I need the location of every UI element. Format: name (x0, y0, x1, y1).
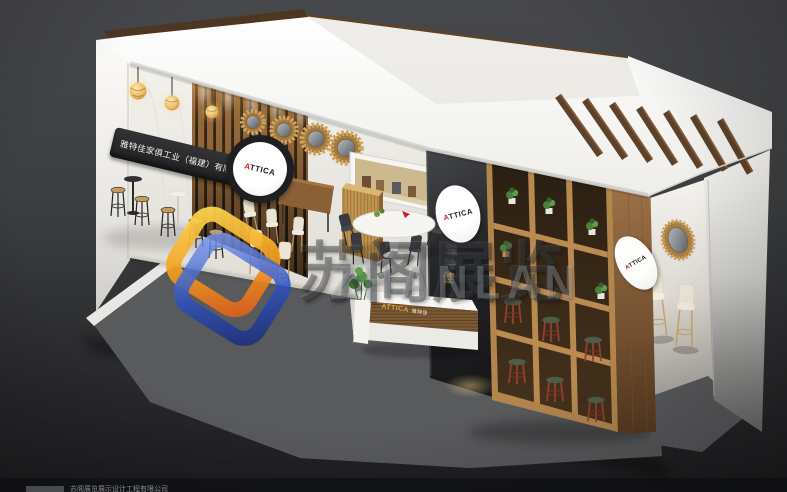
right-outer-wall (704, 150, 770, 432)
footer-caption-text: 苏阁展览展示设计工程有限公司 (70, 484, 168, 492)
round-mirror-icon (242, 111, 264, 133)
watermark-latin-text: ZHANLAN (330, 256, 582, 310)
brand-rest: TTICA (249, 162, 276, 177)
booth-render-image: 雅特佳家俱工业（福建）有限公司 ATTICA ATTICA 雅 特 佳 ATTI… (0, 0, 787, 492)
attica-wordmark: ATTICA (244, 161, 277, 177)
attica-wordmark: ATTICA (624, 255, 647, 272)
round-mirror-icon (302, 125, 330, 153)
footer-chip (26, 486, 64, 492)
brand-rest: TTICA (448, 206, 474, 221)
floor-uplight-glow (444, 374, 496, 398)
brand-rest: TTICA (628, 255, 648, 270)
shelving-side-panel (612, 170, 656, 434)
